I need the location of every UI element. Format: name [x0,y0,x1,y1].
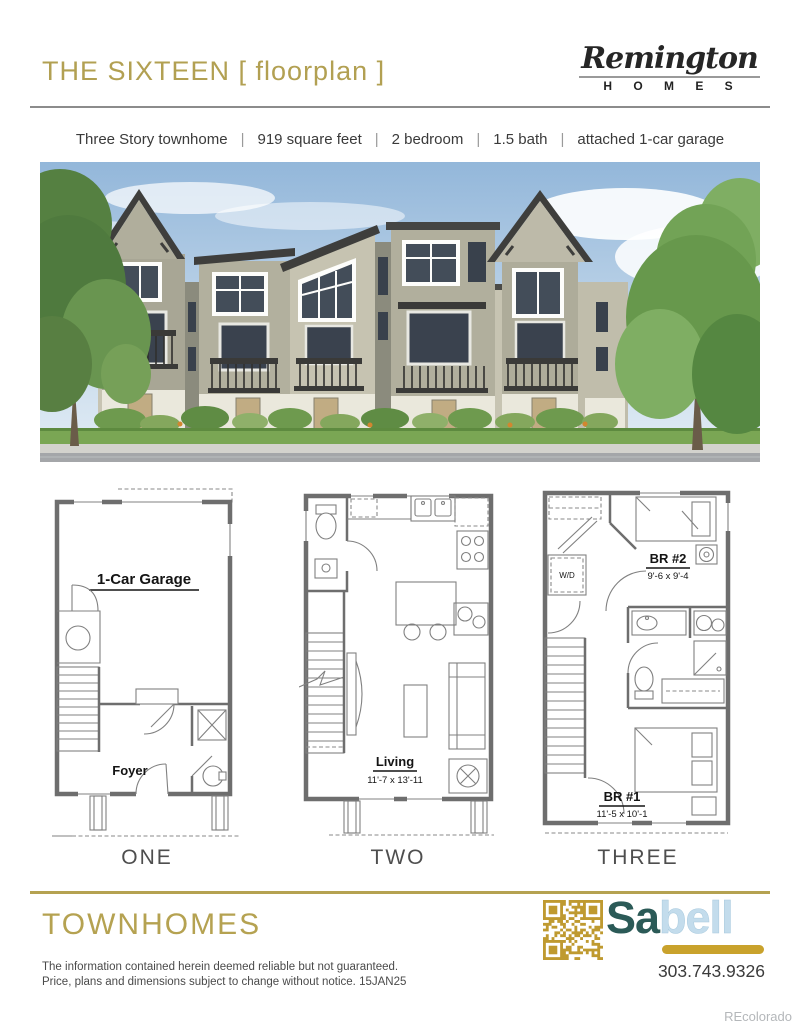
remington-homes-logo: Remington H O M E S [577,44,762,93]
washer-dryer-label: W/D [559,571,575,580]
floorplan-three: W/D BR #2 9'-6 x 9'-4 [540,483,733,845]
living-label: Living [376,754,414,769]
spec-baths: 1.5 bath [493,131,547,148]
foyer-label: Foyer [112,763,147,778]
br2-dims: 9'-6 x 9'-4 [647,571,688,582]
recolorado-watermark: REcolorado [724,1009,792,1024]
br1-dims: 11'-5 x 10'-1 [597,809,648,820]
disclaimer-line2: Price, plans and dimensions subject to c… [42,975,406,990]
page-title: THE SIXTEEN [ floorplan ] [42,56,385,87]
qr-code [543,900,603,960]
floorplan-two-drawing: Living 11'-7 x 13'-11 [299,483,494,840]
spec-garage: attached 1-car garage [577,131,724,148]
logo-underline [579,76,760,78]
plan-one-label: ONE [87,846,207,870]
sabell-logo-light-part: bell [659,892,733,943]
phone-number: 303.743.9326 [658,961,765,982]
unit-d [386,222,500,430]
spec-bedrooms: 2 bedroom [392,131,464,148]
flyer-page: THE SIXTEEN [ floorplan ] Remington H O … [0,0,800,1035]
townhome-rendering-illustration [40,162,760,462]
disclaimer-text: The information contained herein deemed … [42,960,406,990]
unit-b [194,248,295,430]
disclaimer-line1: The information contained herein deemed … [42,960,406,975]
plan-two-label: TWO [338,846,458,870]
living-dims: 11'-7 x 13'-11 [367,775,423,786]
floorplan-one: 1-Car Garage Fo [52,484,240,847]
community-rendering-image [40,162,760,462]
spec-sqft: 919 square feet [257,131,361,148]
community-name: TOWNHOMES [42,908,261,942]
garage-label: 1-Car Garage [97,571,191,588]
br2-label: BR #2 [650,551,687,566]
spec-bar: Three Story townhome | 919 square feet |… [0,131,800,148]
sabell-logo-underline [662,945,764,954]
plan-three-label: THREE [578,846,698,870]
floorplan-three-drawing: W/D BR #2 9'-6 x 9'-4 [540,483,733,840]
floorplan-one-drawing: 1-Car Garage Fo [52,484,240,842]
remington-homes-text: H O M E S [583,79,762,93]
floorplan-two: Living 11'-7 x 13'-11 [299,483,494,845]
sabell-logo: Sabell [606,892,766,944]
sabell-logo-dark-part: Sa [606,892,659,943]
header-divider [30,106,770,108]
remington-script-text: Remington [577,44,762,74]
br1-label: BR #1 [604,789,641,804]
spec-stories: Three Story townhome [76,131,228,148]
